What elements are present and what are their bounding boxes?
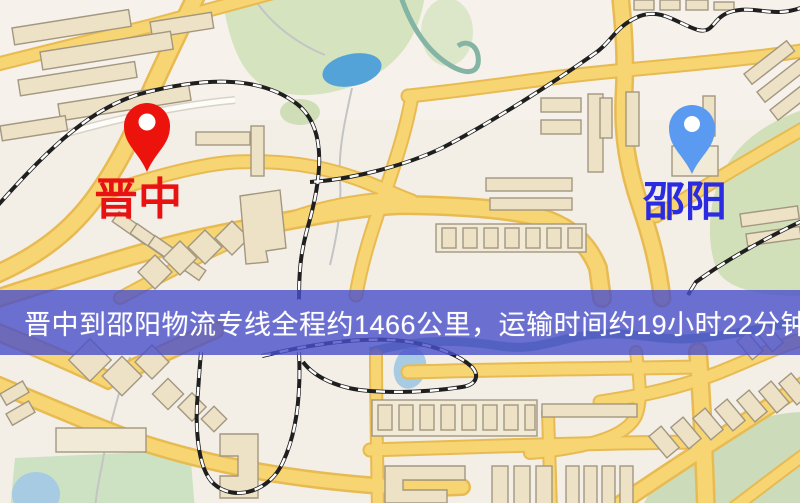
- route-info-banner: 晋中到邵阳物流专线全程约1466公里，运输时间约19小时22分钟.: [0, 290, 800, 355]
- destination-pin-hole: [684, 116, 700, 132]
- origin-pin-hole: [139, 114, 156, 131]
- map-screenshot: 晋中 邵阳 晋中到邵阳物流专线全程约1466公里，运输时间约19小时22分钟.: [0, 0, 800, 503]
- route-info-text: 晋中到邵阳物流专线全程约1466公里，运输时间约19小时22分钟.: [24, 303, 800, 342]
- destination-city-label: 邵阳: [642, 178, 727, 225]
- origin-city-label: 晋中: [94, 175, 182, 224]
- map-canvas: 晋中 邵阳: [0, 0, 800, 503]
